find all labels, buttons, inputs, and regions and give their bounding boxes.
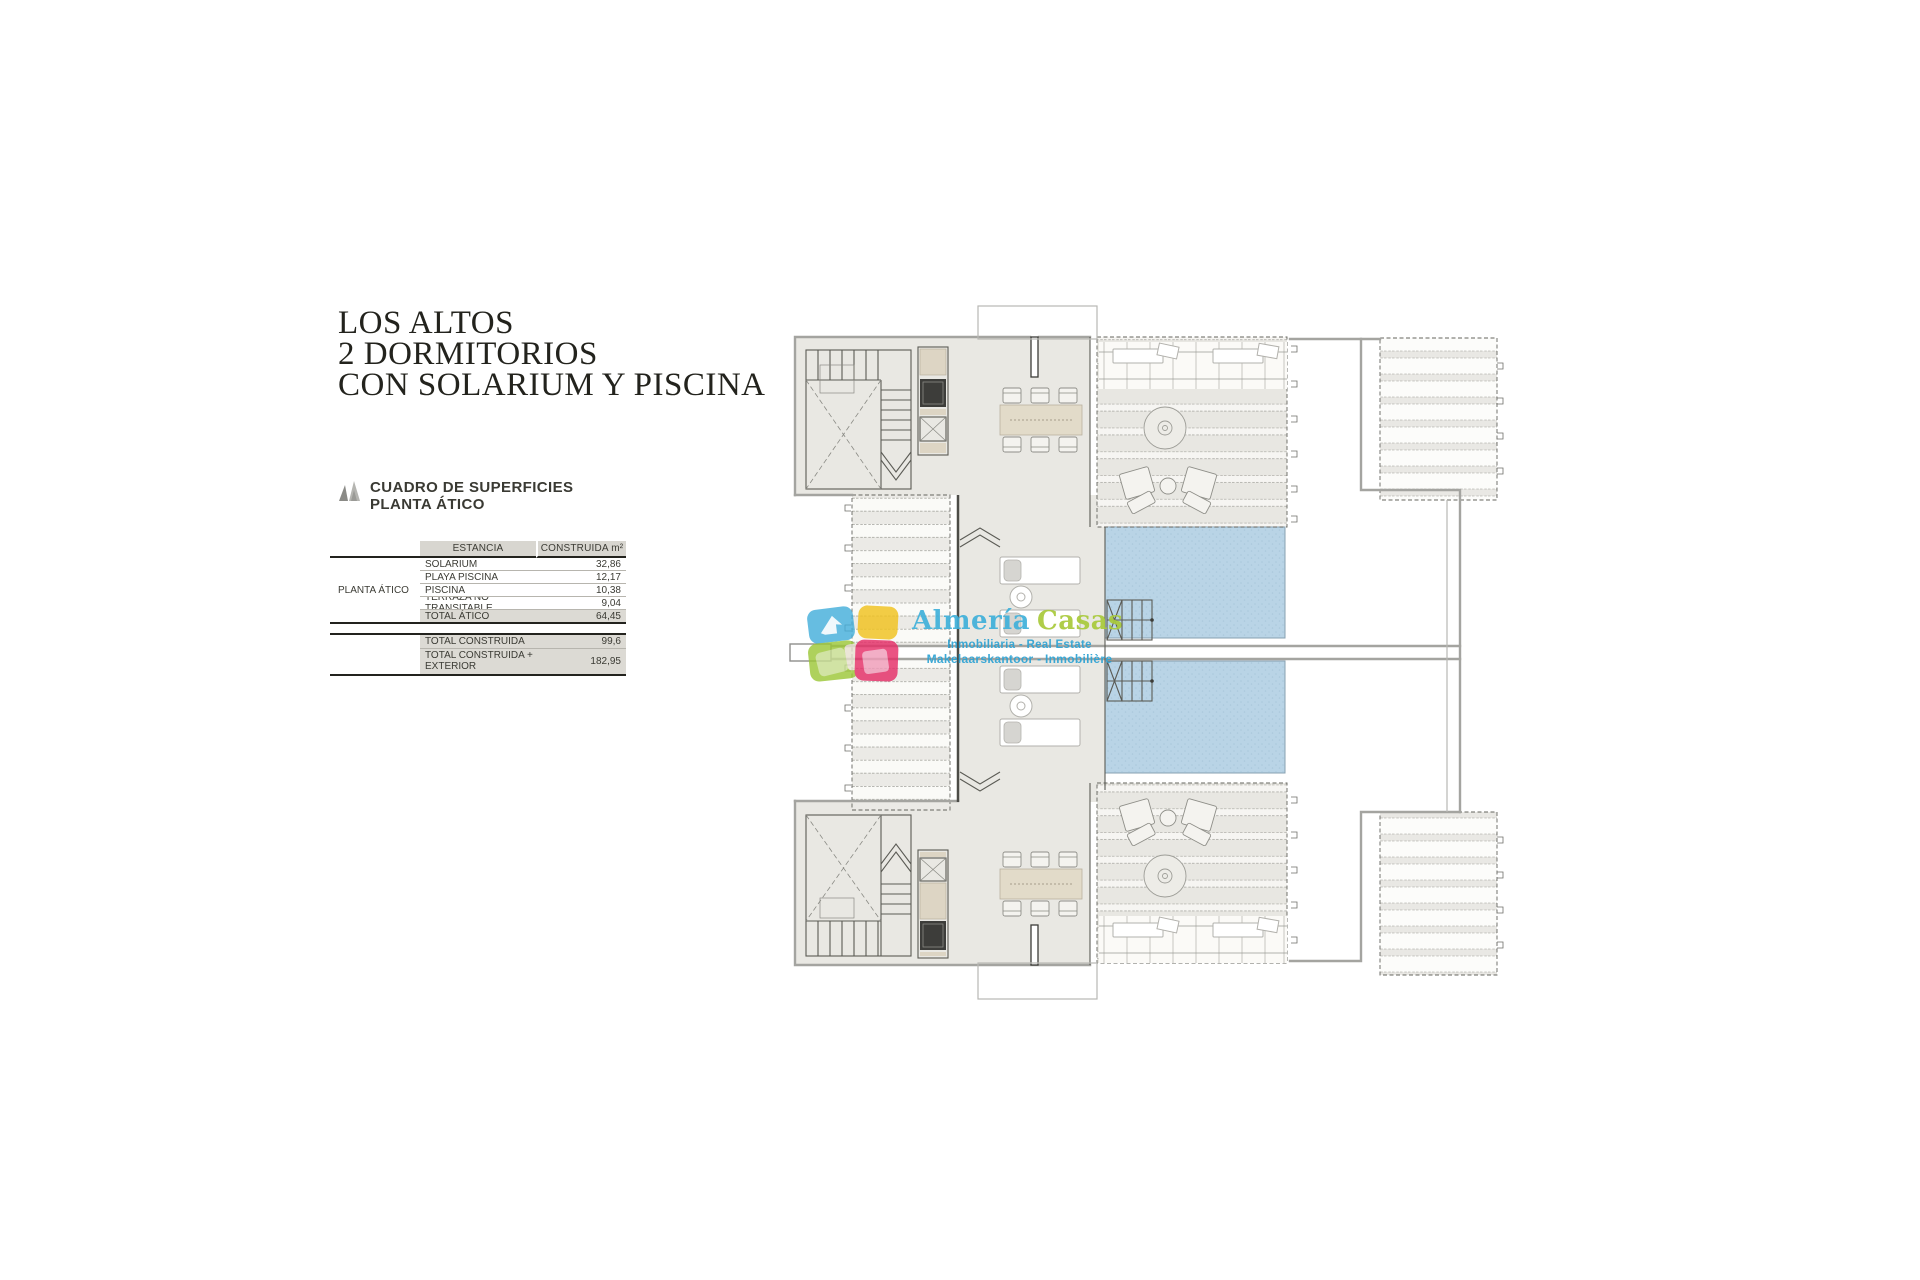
totals-empty-cell — [330, 649, 420, 674]
table-header-construida: CONSTRUIDA m² — [536, 541, 626, 558]
page-title: LOS ALTOS 2 DORMITORIOS CON SOLARIUM Y P… — [338, 308, 766, 401]
brand-tagline-2: Makelaarskantoor - Inmobilière — [912, 652, 1127, 666]
table-row-label-total-atico: TOTAL ÁTICO — [420, 610, 536, 624]
title-line-3: CON SOLARIUM Y PISCINA — [338, 370, 766, 401]
brand-primary: Almería — [912, 606, 1030, 636]
surfaces-heading-line1: CUADRO DE SUPERFICIES — [370, 479, 573, 496]
table-header-empty — [330, 541, 420, 558]
table-row-value-total-atico: 64,45 — [536, 610, 626, 624]
table-group-label: PLANTA ÁTICO — [330, 558, 420, 624]
table-header-estancia: ESTANCIA — [420, 541, 536, 558]
totals-empty-cell — [330, 635, 420, 649]
total-exterior-label: TOTAL CONSTRUIDA + EXTERIOR — [420, 649, 536, 674]
table-row-value: 32,86 — [536, 558, 626, 571]
surfaces-heading: CUADRO DE SUPERFICIES PLANTA ÁTICO — [338, 479, 573, 513]
watermark-text: AlmeríaCasas Inmobiliaria - Real Estate … — [912, 606, 1127, 666]
brand-tagline-1: Inmobiliaria - Real Estate — [912, 639, 1127, 651]
almeria-casas-logo-icon — [806, 604, 900, 684]
watermark-logo: AlmeríaCasas Inmobiliaria - Real Estate … — [806, 598, 1126, 684]
table-row-label: PLAYA PISCINA — [420, 571, 536, 584]
total-exterior-value: 182,95 — [536, 649, 626, 674]
table-row-label: TERRAZA NO TRANSITABLE — [420, 597, 536, 610]
surfaces-heading-line2: PLANTA ÁTICO — [370, 496, 573, 513]
brand-name: AlmeríaCasas — [912, 606, 1127, 636]
total-construida-value: 99,6 — [536, 635, 626, 649]
surfaces-heading-text: CUADRO DE SUPERFICIES PLANTA ÁTICO — [370, 479, 573, 513]
table-row-value: 12,17 — [536, 571, 626, 584]
dining-set — [1000, 388, 1082, 452]
brochure-page: { "title": { "line1": "LOS ALTOS", "line… — [0, 0, 1920, 1280]
buildings-icon — [338, 481, 362, 503]
surfaces-table-main: ESTANCIA CONSTRUIDA m² PLANTA ÁTICO SOLA… — [330, 541, 626, 624]
brand-secondary: Casas — [1037, 606, 1123, 636]
table-row-label: PISCINA — [420, 584, 536, 597]
table-row-value: 10,38 — [536, 584, 626, 597]
total-construida-label: TOTAL CONSTRUIDA — [420, 635, 536, 649]
title-line-1: LOS ALTOS — [338, 308, 766, 339]
surfaces-table: ESTANCIA CONSTRUIDA m² PLANTA ÁTICO SOLA… — [330, 541, 626, 676]
table-row-value: 9,04 — [536, 597, 626, 610]
table-row-label: SOLARIUM — [420, 558, 536, 571]
surfaces-table-totals: TOTAL CONSTRUIDA 99,6 TOTAL CONSTRUIDA +… — [330, 633, 626, 676]
title-line-2: 2 DORMITORIOS — [338, 339, 766, 370]
